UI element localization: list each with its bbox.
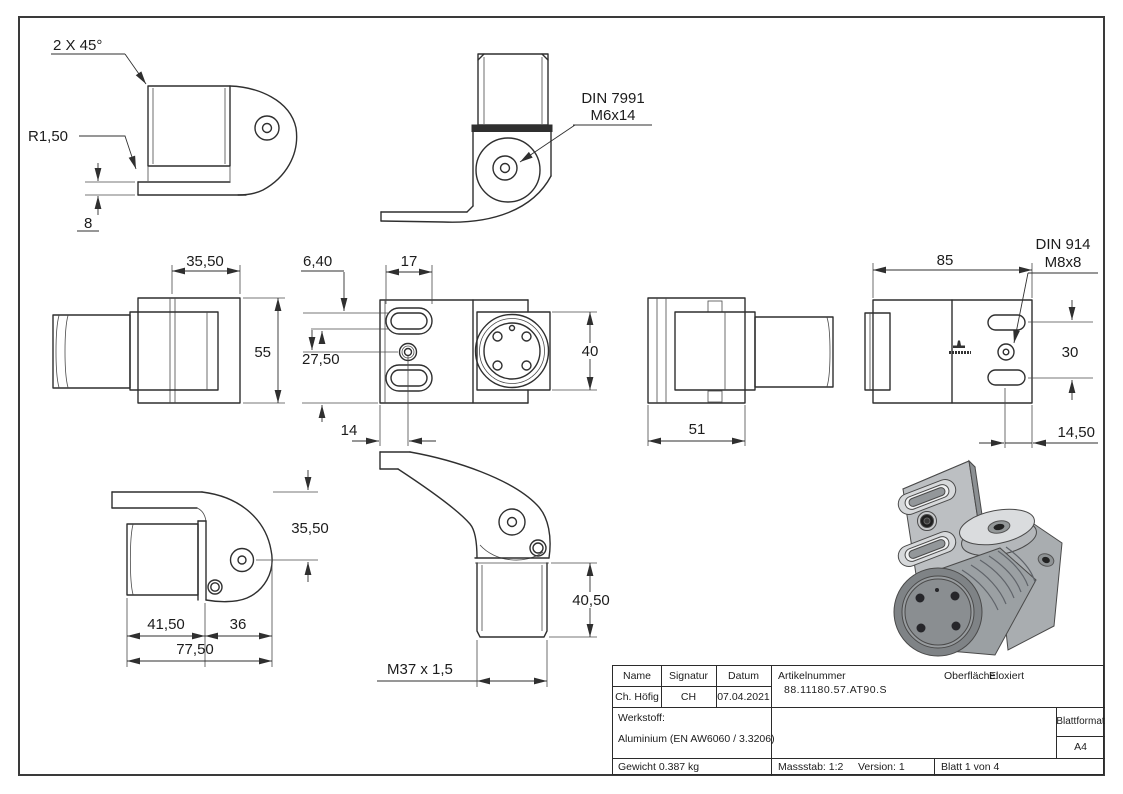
view-middle-right: 51 <box>648 298 833 446</box>
scale-value: Massstab: 1:2 <box>778 761 843 773</box>
dim-slot-width: 6,40 <box>303 253 332 270</box>
format-value: A4 <box>1056 736 1105 758</box>
view-3d-isometric <box>894 461 1062 656</box>
dim-din7991: DIN 7991 <box>581 90 644 107</box>
sheet-value: Blatt 1 von 4 <box>941 761 999 773</box>
dim-height: 55 <box>254 344 271 361</box>
dim-slot-spacing: 30 <box>1062 344 1079 361</box>
dim-arm-height: 35,50 <box>291 520 329 537</box>
dim-cylinder-height: 40,50 <box>572 592 610 609</box>
dim-slot-offset: 14,50 <box>1057 424 1095 441</box>
dim-depth: 51 <box>689 421 706 438</box>
material-label: Werkstoff: <box>618 712 665 724</box>
dim-radius: R1,50 <box>28 128 68 145</box>
view-middle-left: 35,50 55 <box>53 253 285 403</box>
article-number: 88.11180.57.AT90.S <box>784 684 887 696</box>
dim-length: 85 <box>937 252 954 269</box>
dim-cylinder-length: 41,50 <box>147 616 185 633</box>
dim-thickness: 8 <box>84 215 92 232</box>
dim-chamfer: 2 X 45° <box>53 37 102 54</box>
material-value: Aluminium (EN AW6060 / 3.3206) <box>618 733 775 745</box>
dim-boss-height: 40 <box>582 343 599 360</box>
view-far-right: 85 DIN 914 M8x8 30 14,50 <box>865 236 1098 448</box>
dim-hole-distance: 14 <box>341 422 358 439</box>
dim-hole-offset: 27,50 <box>302 351 340 368</box>
dim-thread: M37 x 1,5 <box>387 661 453 678</box>
date-header: Datum <box>716 666 771 686</box>
version-value: Version: 1 <box>858 761 905 773</box>
dim-m8x8: M8x8 <box>1045 254 1082 271</box>
weight-value: Gewicht 0.387 kg <box>618 761 699 773</box>
date-value: 07.04.2021 <box>716 686 771 707</box>
dim-slot-length: 17 <box>401 253 418 270</box>
view-bottom-center: 40,50 M37 x 1,5 <box>377 452 612 687</box>
dim-width: 35,50 <box>186 253 224 270</box>
dim-head-length: 36 <box>230 616 247 633</box>
article-header: Artikelnummer <box>778 670 846 682</box>
surface-value: Eloxiert <box>989 670 1024 682</box>
name-value: Ch. Höfig <box>613 686 661 707</box>
dim-total-length: 77,50 <box>176 641 214 658</box>
view-top-center: DIN 7991 M6x14 <box>381 54 652 222</box>
view-middle-center: 17 6,40 27,50 14 40 <box>301 253 604 446</box>
view-bottom-left: 35,50 41,50 36 77,50 <box>112 470 329 667</box>
view-top-left: 2 X 45° R1,50 8 <box>28 37 297 232</box>
signature-header: Signatur <box>661 666 716 686</box>
dim-m6x14: M6x14 <box>590 107 635 124</box>
drawing-sheet: 2 X 45° R1,50 8 DIN 7991 M6x14 <box>0 0 1123 794</box>
name-header: Name <box>613 666 661 686</box>
format-label: Blattformat <box>1056 707 1105 736</box>
signature-value: CH <box>661 686 716 707</box>
title-block: Name Signatur Datum Artikelnummer Oberfl… <box>612 665 1104 775</box>
dim-din914: DIN 914 <box>1035 236 1090 253</box>
